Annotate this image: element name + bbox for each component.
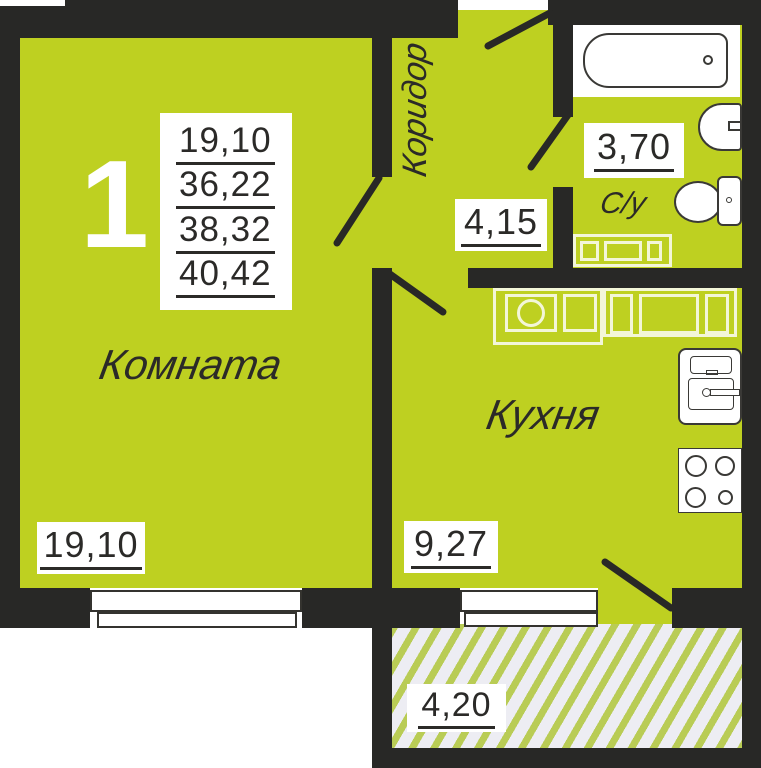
- bathroom-door-swing: [531, 115, 568, 167]
- door-swing-lines: [0, 0, 761, 768]
- kitchen-door-swing: [387, 272, 443, 312]
- balcony-door-swing: [605, 562, 671, 608]
- floor-plan: 1 19,10 36,22 38,32 40,42 3,70 4,15 19,1…: [0, 0, 761, 768]
- living-door-swing: [337, 178, 379, 243]
- entrance-door-swing: [488, 13, 550, 46]
